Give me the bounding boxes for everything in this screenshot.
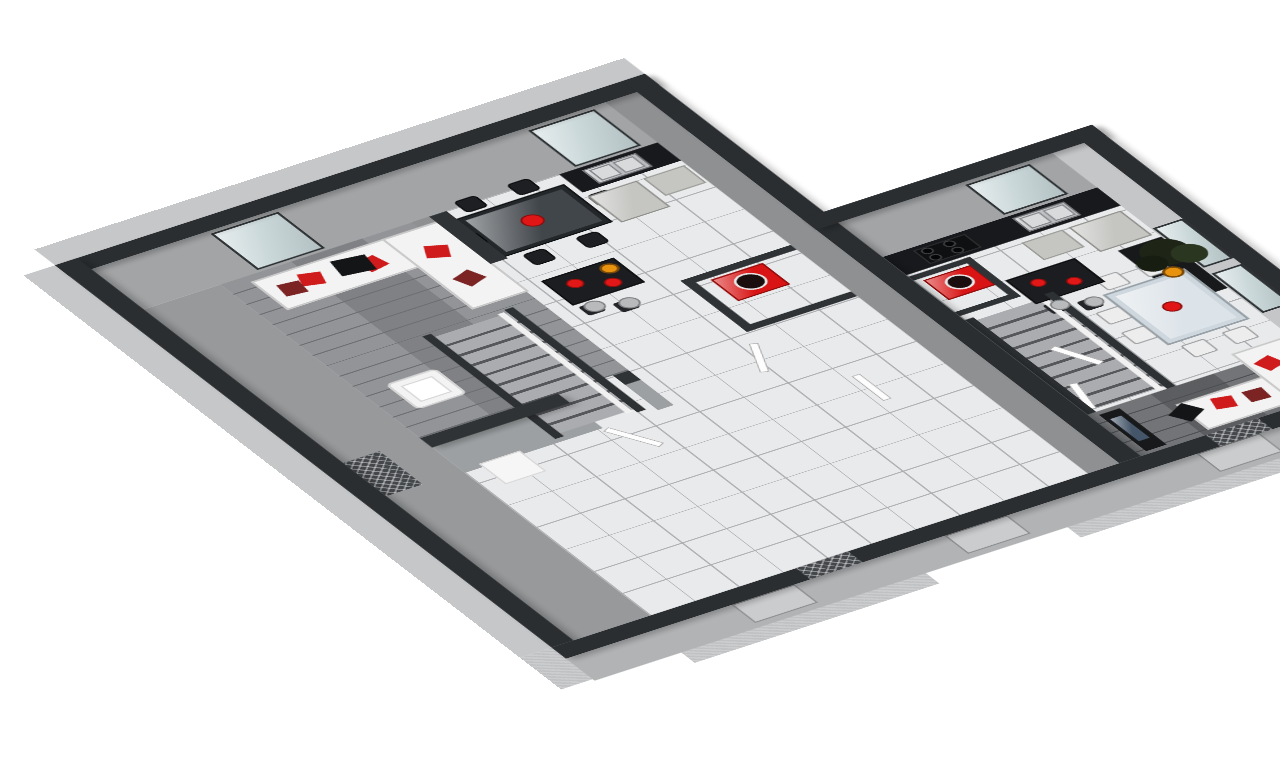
isometric-floor-plan — [3, 0, 1280, 733]
floor-plan-render — [0, 0, 1280, 768]
sofa-a-cushion-red-3 — [424, 245, 452, 259]
